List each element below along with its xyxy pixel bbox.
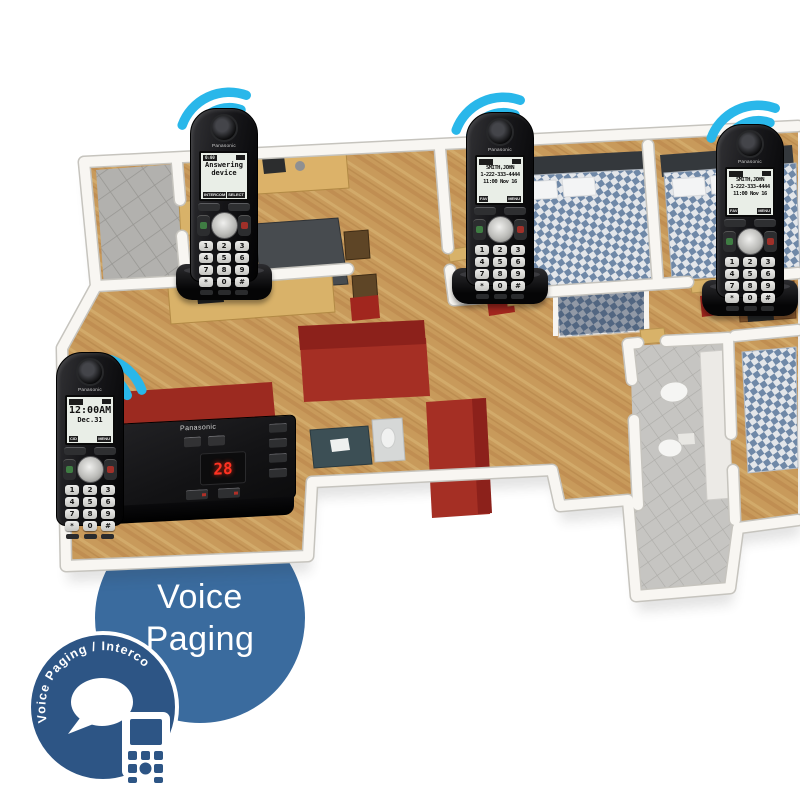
- softkey-right-label: MENU: [507, 196, 521, 202]
- key-9: 9: [101, 509, 115, 519]
- key-1: 1: [199, 241, 213, 251]
- key-6: 6: [101, 497, 115, 507]
- key-5: 5: [83, 497, 97, 507]
- key-5: 5: [743, 269, 757, 279]
- earpiece-speaker-icon: [486, 118, 514, 146]
- off-button: [514, 219, 527, 240]
- key-#: #: [235, 277, 249, 287]
- handset-lcd: 0:00 Answering device INTERCOM SELECT: [199, 151, 249, 201]
- battery-icon: [512, 159, 521, 164]
- handset-lcd: SMITH,JOHN 1-222-333-4444 11:00 Nov 16 F…: [475, 155, 525, 205]
- dial-keypad: 123456789*0#: [717, 254, 783, 303]
- soft-buttons: [717, 217, 783, 227]
- key-8: 8: [83, 509, 97, 519]
- softkey-right-label: MENU: [97, 436, 111, 442]
- dial-keypad: 123456789*0#: [57, 482, 123, 531]
- handset-brand-label: Panasonic: [198, 144, 249, 149]
- off-button: [764, 231, 777, 252]
- battery-icon: [102, 399, 111, 404]
- lcd-status-block: [729, 171, 743, 177]
- key-4: 4: [65, 497, 79, 507]
- key-8: 8: [493, 269, 507, 279]
- handset-base: Panasonic 12:00AM Dec.31 CID MENU 123456…: [42, 352, 142, 542]
- soft-buttons: [57, 445, 123, 455]
- base-side-buttons: [269, 423, 287, 478]
- bottom-buttons: [467, 291, 533, 299]
- dial-keypad: 123456789*0#: [191, 238, 257, 287]
- key-7: 7: [199, 265, 213, 275]
- key-*: *: [725, 293, 739, 303]
- handset-kitchen: Panasonic 0:00 Answering device INTERCOM…: [176, 108, 276, 298]
- key-4: 4: [199, 253, 213, 263]
- handset-brand-label: Panasonic: [64, 388, 115, 393]
- softkey-right-label: SELECT: [227, 192, 245, 198]
- bottom-buttons: [717, 303, 783, 311]
- battery-icon: [236, 155, 245, 160]
- key-4: 4: [475, 257, 489, 267]
- dial-keypad: 123456789*0#: [467, 242, 533, 291]
- handset-body: Panasonic SMITH,JOHN 1-222-333-4444 11:0…: [466, 112, 534, 286]
- key-*: *: [65, 521, 79, 531]
- key-7: 7: [475, 269, 489, 279]
- nav-disc-button: [77, 456, 104, 483]
- key-1: 1: [65, 485, 79, 495]
- product-feature-illustration: Voice Paging: [0, 0, 800, 800]
- nav-disc-button: [211, 212, 238, 239]
- key-7: 7: [725, 281, 739, 291]
- nav-cluster: [191, 211, 257, 238]
- handset-lcd: 12:00AM Dec.31 CID MENU: [65, 395, 115, 445]
- key-1: 1: [725, 257, 739, 267]
- key-6: 6: [761, 269, 775, 279]
- bottom-buttons: [57, 531, 123, 539]
- key-3: 3: [761, 257, 775, 267]
- key-0: 0: [217, 277, 231, 287]
- key-5: 5: [217, 253, 231, 263]
- earpiece-speaker-icon: [736, 130, 764, 158]
- key-0: 0: [493, 281, 507, 291]
- key-9: 9: [761, 281, 775, 291]
- nav-cluster: [57, 455, 123, 482]
- lcd-line: Answering: [203, 161, 245, 169]
- talk-button: [63, 459, 76, 480]
- handset-bedroom-2: Panasonic SMITH,JOHN 1-222-333-4444 11:0…: [702, 124, 800, 314]
- handset-brand-label: Panasonic: [724, 160, 775, 165]
- key-4: 4: [725, 269, 739, 279]
- key-2: 2: [493, 245, 507, 255]
- battery-icon: [762, 171, 771, 176]
- lcd-line: 1-222-333-4444: [729, 184, 771, 191]
- key-8: 8: [743, 281, 757, 291]
- handset-body: Panasonic 12:00AM Dec.31 CID MENU 123456…: [56, 352, 124, 526]
- key-#: #: [511, 281, 525, 291]
- key-6: 6: [511, 257, 525, 267]
- intercom-phone-icon: [122, 712, 170, 783]
- talk-button: [197, 215, 210, 236]
- key-3: 3: [101, 485, 115, 495]
- handset-body: Panasonic 0:00 Answering device INTERCOM…: [190, 108, 258, 282]
- bottom-buttons: [191, 287, 257, 295]
- key-#: #: [761, 293, 775, 303]
- lcd-line: 12:00AM: [69, 405, 111, 416]
- handset-body: Panasonic SMITH,JOHN 1-222-333-4444 11:0…: [716, 124, 784, 298]
- lcd-line: Dec.31: [69, 416, 111, 424]
- key-3: 3: [235, 241, 249, 251]
- handset-brand-label: Panasonic: [474, 148, 525, 153]
- key-8: 8: [217, 265, 231, 275]
- voice-paging-intercom-badge: Voice Paging / Intercom: [18, 622, 188, 792]
- key-9: 9: [511, 269, 525, 279]
- red-cushion-living: [350, 295, 380, 321]
- lcd-status-block: 0:00: [203, 155, 217, 161]
- off-button: [238, 215, 251, 236]
- handset-bedroom-1: Panasonic SMITH,JOHN 1-222-333-4444 11:0…: [452, 112, 552, 302]
- key-0: 0: [743, 293, 757, 303]
- earpiece-speaker-icon: [76, 358, 104, 386]
- soft-buttons: [191, 201, 257, 211]
- chaise-sofa: [426, 398, 492, 518]
- key-#: #: [101, 521, 115, 531]
- softkey-left-label: CID: [69, 436, 78, 442]
- earpiece-speaker-icon: [210, 114, 238, 142]
- key-6: 6: [235, 253, 249, 263]
- key-3: 3: [511, 245, 525, 255]
- message-counter-led: 28: [200, 451, 246, 485]
- key-9: 9: [235, 265, 249, 275]
- talk-button: [473, 219, 486, 240]
- key-1: 1: [475, 245, 489, 255]
- key-2: 2: [217, 241, 231, 251]
- base-top-buttons: [184, 435, 225, 447]
- nav-cluster: [717, 227, 783, 254]
- lcd-status-block: [69, 399, 83, 405]
- key-*: *: [475, 281, 489, 291]
- lcd-line: device: [203, 169, 245, 177]
- soft-buttons: [467, 205, 533, 215]
- lcd-status-block: [479, 159, 493, 165]
- key-7: 7: [65, 509, 79, 519]
- softkey-left-label: INTERCOM: [203, 192, 226, 198]
- key-2: 2: [83, 485, 97, 495]
- patio-tile-floor: [96, 164, 184, 288]
- key-*: *: [199, 277, 213, 287]
- lcd-line: SMITH,JOHN: [729, 177, 771, 184]
- lcd-line: 11:00 Nov 16: [729, 191, 771, 198]
- key-5: 5: [493, 257, 507, 267]
- lcd-line: 11:00 Nov 16: [479, 179, 521, 186]
- softkey-left-label: FAV: [479, 196, 488, 202]
- nav-disc-button: [487, 216, 514, 243]
- sofa: [298, 320, 430, 402]
- softkey-right-label: MENU: [757, 208, 771, 214]
- right-room-rug: [742, 347, 798, 473]
- lcd-line: 1-222-333-4444: [479, 172, 521, 179]
- nav-disc-button: [737, 228, 764, 255]
- off-button: [104, 459, 117, 480]
- side-table-lamp: [372, 418, 405, 462]
- handset-lcd: SMITH,JOHN 1-222-333-4444 11:00 Nov 16 F…: [725, 167, 775, 217]
- coffee-table: [310, 426, 372, 468]
- softkey-left-label: FAV: [729, 208, 738, 214]
- key-2: 2: [743, 257, 757, 267]
- lcd-line: SMITH,JOHN: [479, 165, 521, 172]
- talk-button: [723, 231, 736, 252]
- nav-cluster: [467, 215, 533, 242]
- key-0: 0: [83, 521, 97, 531]
